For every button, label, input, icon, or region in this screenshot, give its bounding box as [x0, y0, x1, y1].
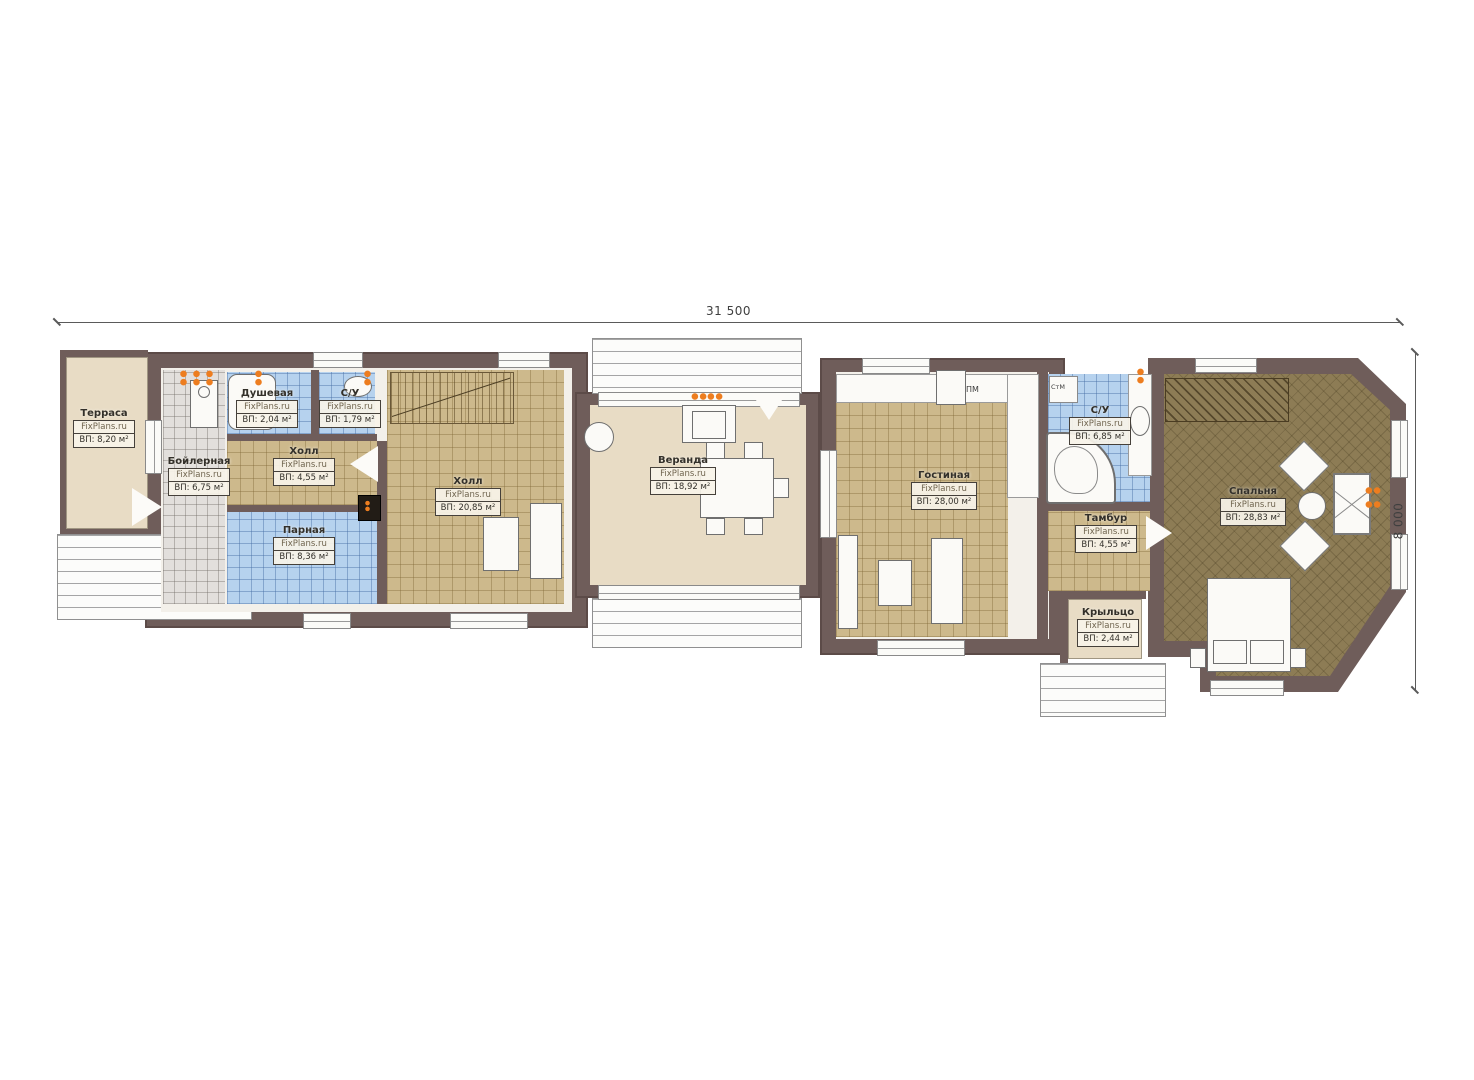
- room-label-parnaya: Парная FixPlans.ru ВП: 8,36 м²: [271, 525, 337, 565]
- sink-icon: [1130, 406, 1150, 436]
- window: [1195, 358, 1257, 373]
- radiator-icon: [1136, 367, 1145, 385]
- wall-stub: [311, 370, 319, 436]
- nightstand: [1190, 648, 1206, 668]
- radiator-icon: [363, 369, 372, 387]
- hall-cabinet: [483, 517, 519, 571]
- room-label-su2: С/У FixPlans.ru ВП: 6,85 м²: [1070, 405, 1130, 445]
- terrace-wall-top: [60, 350, 148, 357]
- staircase-run-line: [392, 372, 510, 422]
- room-label-dushevaya: Душевая FixPlans.ru ВП: 2,04 м²: [236, 388, 298, 428]
- floor-plan: 31 500 8 000: [0, 0, 1474, 1080]
- room-label-holl1: Холл FixPlans.ru ВП: 4,55 м²: [272, 446, 336, 486]
- radiator-icon: [179, 369, 188, 387]
- living-room-floor: [836, 400, 1008, 637]
- dimension-line-right: [1415, 352, 1416, 690]
- window: [877, 640, 965, 656]
- chair: [706, 518, 725, 535]
- kitchen-counter: [836, 374, 1028, 403]
- room-label-spalnya: Спальня FixPlans.ru ВП: 28,83 м²: [1218, 486, 1288, 526]
- window: [1391, 420, 1408, 478]
- wall-stub: [1060, 591, 1068, 663]
- window: [498, 352, 550, 368]
- side-table: [1298, 492, 1326, 520]
- window: [145, 420, 162, 474]
- clock-icon: [584, 422, 614, 452]
- window: [450, 613, 528, 629]
- bed-pillow: [1213, 640, 1247, 664]
- chair: [744, 518, 763, 535]
- window: [820, 450, 837, 538]
- washer-label: СтМ: [1051, 383, 1065, 391]
- porch-stairs: [1040, 663, 1166, 717]
- window: [313, 352, 363, 368]
- window: [1210, 680, 1284, 696]
- dimension-line-top: [57, 322, 1400, 323]
- kitchen-cabinet-column: [1007, 374, 1039, 498]
- room-label-holl2: Холл FixPlans.ru ВП: 20,85 м²: [433, 476, 503, 516]
- wall-stub: [227, 434, 377, 441]
- room-label-gostinaya: Гостиная FixPlans.ru ВП: 28,00 м²: [905, 470, 983, 510]
- window: [862, 358, 930, 374]
- chair: [744, 442, 763, 459]
- chair: [773, 478, 789, 498]
- wall-stub: [377, 441, 387, 604]
- corner-bathtub-inner: [1054, 446, 1098, 494]
- room-label-veranda: Веранда FixPlans.ru ВП: 18,92 м²: [648, 455, 718, 495]
- window: [303, 613, 351, 629]
- radiator-icon: [254, 369, 263, 387]
- veranda-stairs-bottom: [592, 598, 802, 648]
- sauna-stove-heat-icon: [364, 500, 370, 513]
- radiator-icon: [1364, 500, 1382, 509]
- radiator-icon: [205, 369, 214, 387]
- living-sofa: [838, 535, 858, 629]
- veranda-stove-inner: [692, 411, 726, 439]
- room-label-su1: С/У FixPlans.ru ВП: 1,79 м²: [322, 388, 378, 428]
- room-label-boilernaya: Бойлерная FixPlans.ru ВП: 6,75 м²: [165, 456, 233, 496]
- room-label-tambur: Тамбур FixPlans.ru ВП: 4,55 м²: [1075, 513, 1137, 553]
- window: [1391, 534, 1408, 590]
- dimension-width-label: 31 500: [57, 304, 1400, 318]
- bed-pillow: [1250, 640, 1284, 664]
- radiator-icon: [192, 369, 201, 387]
- room-label-kryltso: Крыльцо FixPlans.ru ВП: 2,44 м²: [1078, 607, 1138, 647]
- dishwasher-label: ПМ: [966, 385, 979, 394]
- radiator-icon: [706, 392, 724, 401]
- veranda-stairs-top: [592, 338, 802, 394]
- veranda-glazing-bottom: [598, 585, 800, 600]
- radiator-icon: [1364, 486, 1382, 495]
- coffee-table: [878, 560, 912, 606]
- boiler-gauge-icon: [198, 386, 210, 398]
- dimension-height-label: 8 000: [1391, 503, 1405, 540]
- nightstand: [1290, 648, 1306, 668]
- hall-sofa: [530, 503, 562, 579]
- wall-stub: [1060, 591, 1146, 599]
- bedroom-wardrobe: [1165, 378, 1289, 422]
- kitchen-sink: [936, 370, 966, 405]
- living-sofa-2: [931, 538, 963, 624]
- room-label-terrasa: Терраса FixPlans.ru ВП: 8,20 м²: [64, 408, 144, 448]
